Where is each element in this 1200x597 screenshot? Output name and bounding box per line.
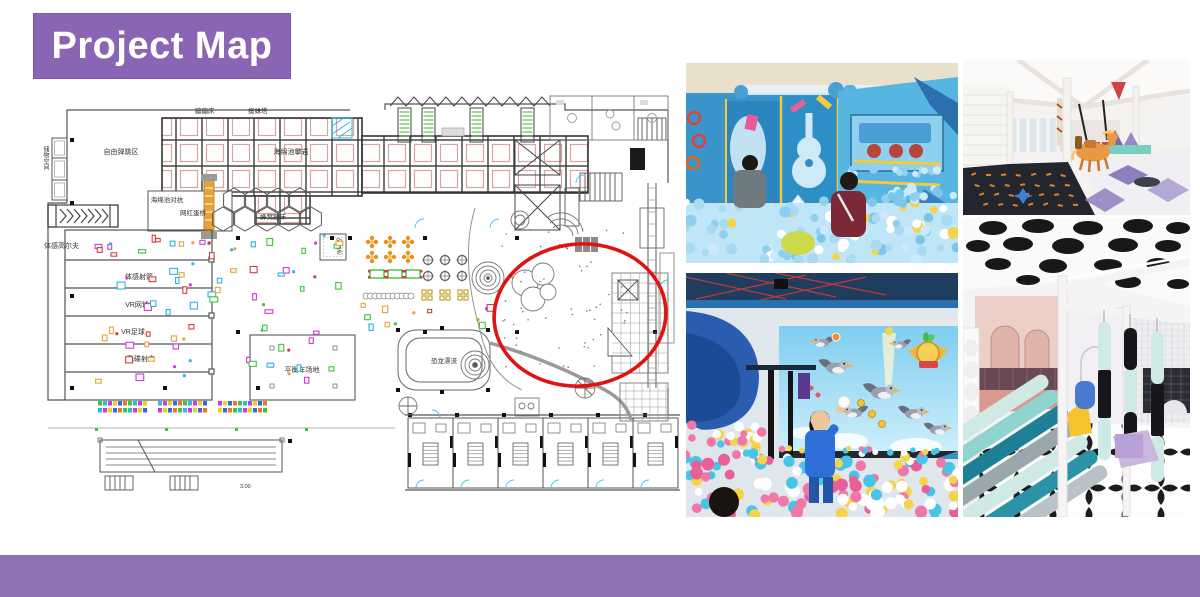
zone-label-spider-tower: 蜘蛛塔 [248,106,268,115]
label-free-jump: 自由弹跳区 [104,147,139,156]
floor-plan-drawing: 蹦蹦床 蜘蛛塔 自由弹跳区 海绵池攀岩 海绵池对抗 网红蛋桥 蜂窝蹦床 储物空间 [20,88,680,528]
label-golf: 体感高尔夫 [44,241,79,250]
label-sponge-battle: 海绵池对抗 [151,195,184,204]
label-dino-drift: 恐龙漂流 [431,356,458,365]
photo-ball-pit-interactive-wall [686,63,958,263]
photo-projection-ball-game [686,273,958,517]
page-title: Project Map [52,25,273,68]
photo-black-white-playroom [963,218,1190,517]
bottom-room-units [408,418,678,488]
label-honeycomb: 蜂窝蹦床 [260,212,287,221]
label-dimension: 3.00 [240,484,251,490]
bottom-stairs [105,476,198,490]
label-storage: 储物空间 [42,145,49,171]
top-structure [686,273,958,308]
stair-block [580,118,666,201]
floor-plan-container: 蹦蹦床 蜘蛛塔 自由弹跳区 海绵池攀岩 海绵池对抗 网红蛋桥 蜂窝蹦床 储物空间 [20,88,680,528]
roller-slide [48,205,118,227]
beanbag-prop [781,231,815,255]
label-vr-soccer: VR足球 [121,327,145,336]
label-sponge-climb: 海绵池攀岩 [274,147,309,156]
label-egg-bridge: 网红蛋桥 [180,208,207,217]
child-head [709,487,739,517]
entrance-zigzag [390,97,550,106]
slide-title-banner: Project Map [33,13,291,79]
colorful-equipment-strips [98,401,267,413]
footer-bar [0,555,1200,597]
zone-label-trampoline: 蹦蹦床 [195,106,215,115]
storage-cabinet [52,138,67,200]
photo-horse-swing-room [963,60,1190,215]
red-annotation-ellipse [488,237,672,393]
running-track [98,438,292,472]
